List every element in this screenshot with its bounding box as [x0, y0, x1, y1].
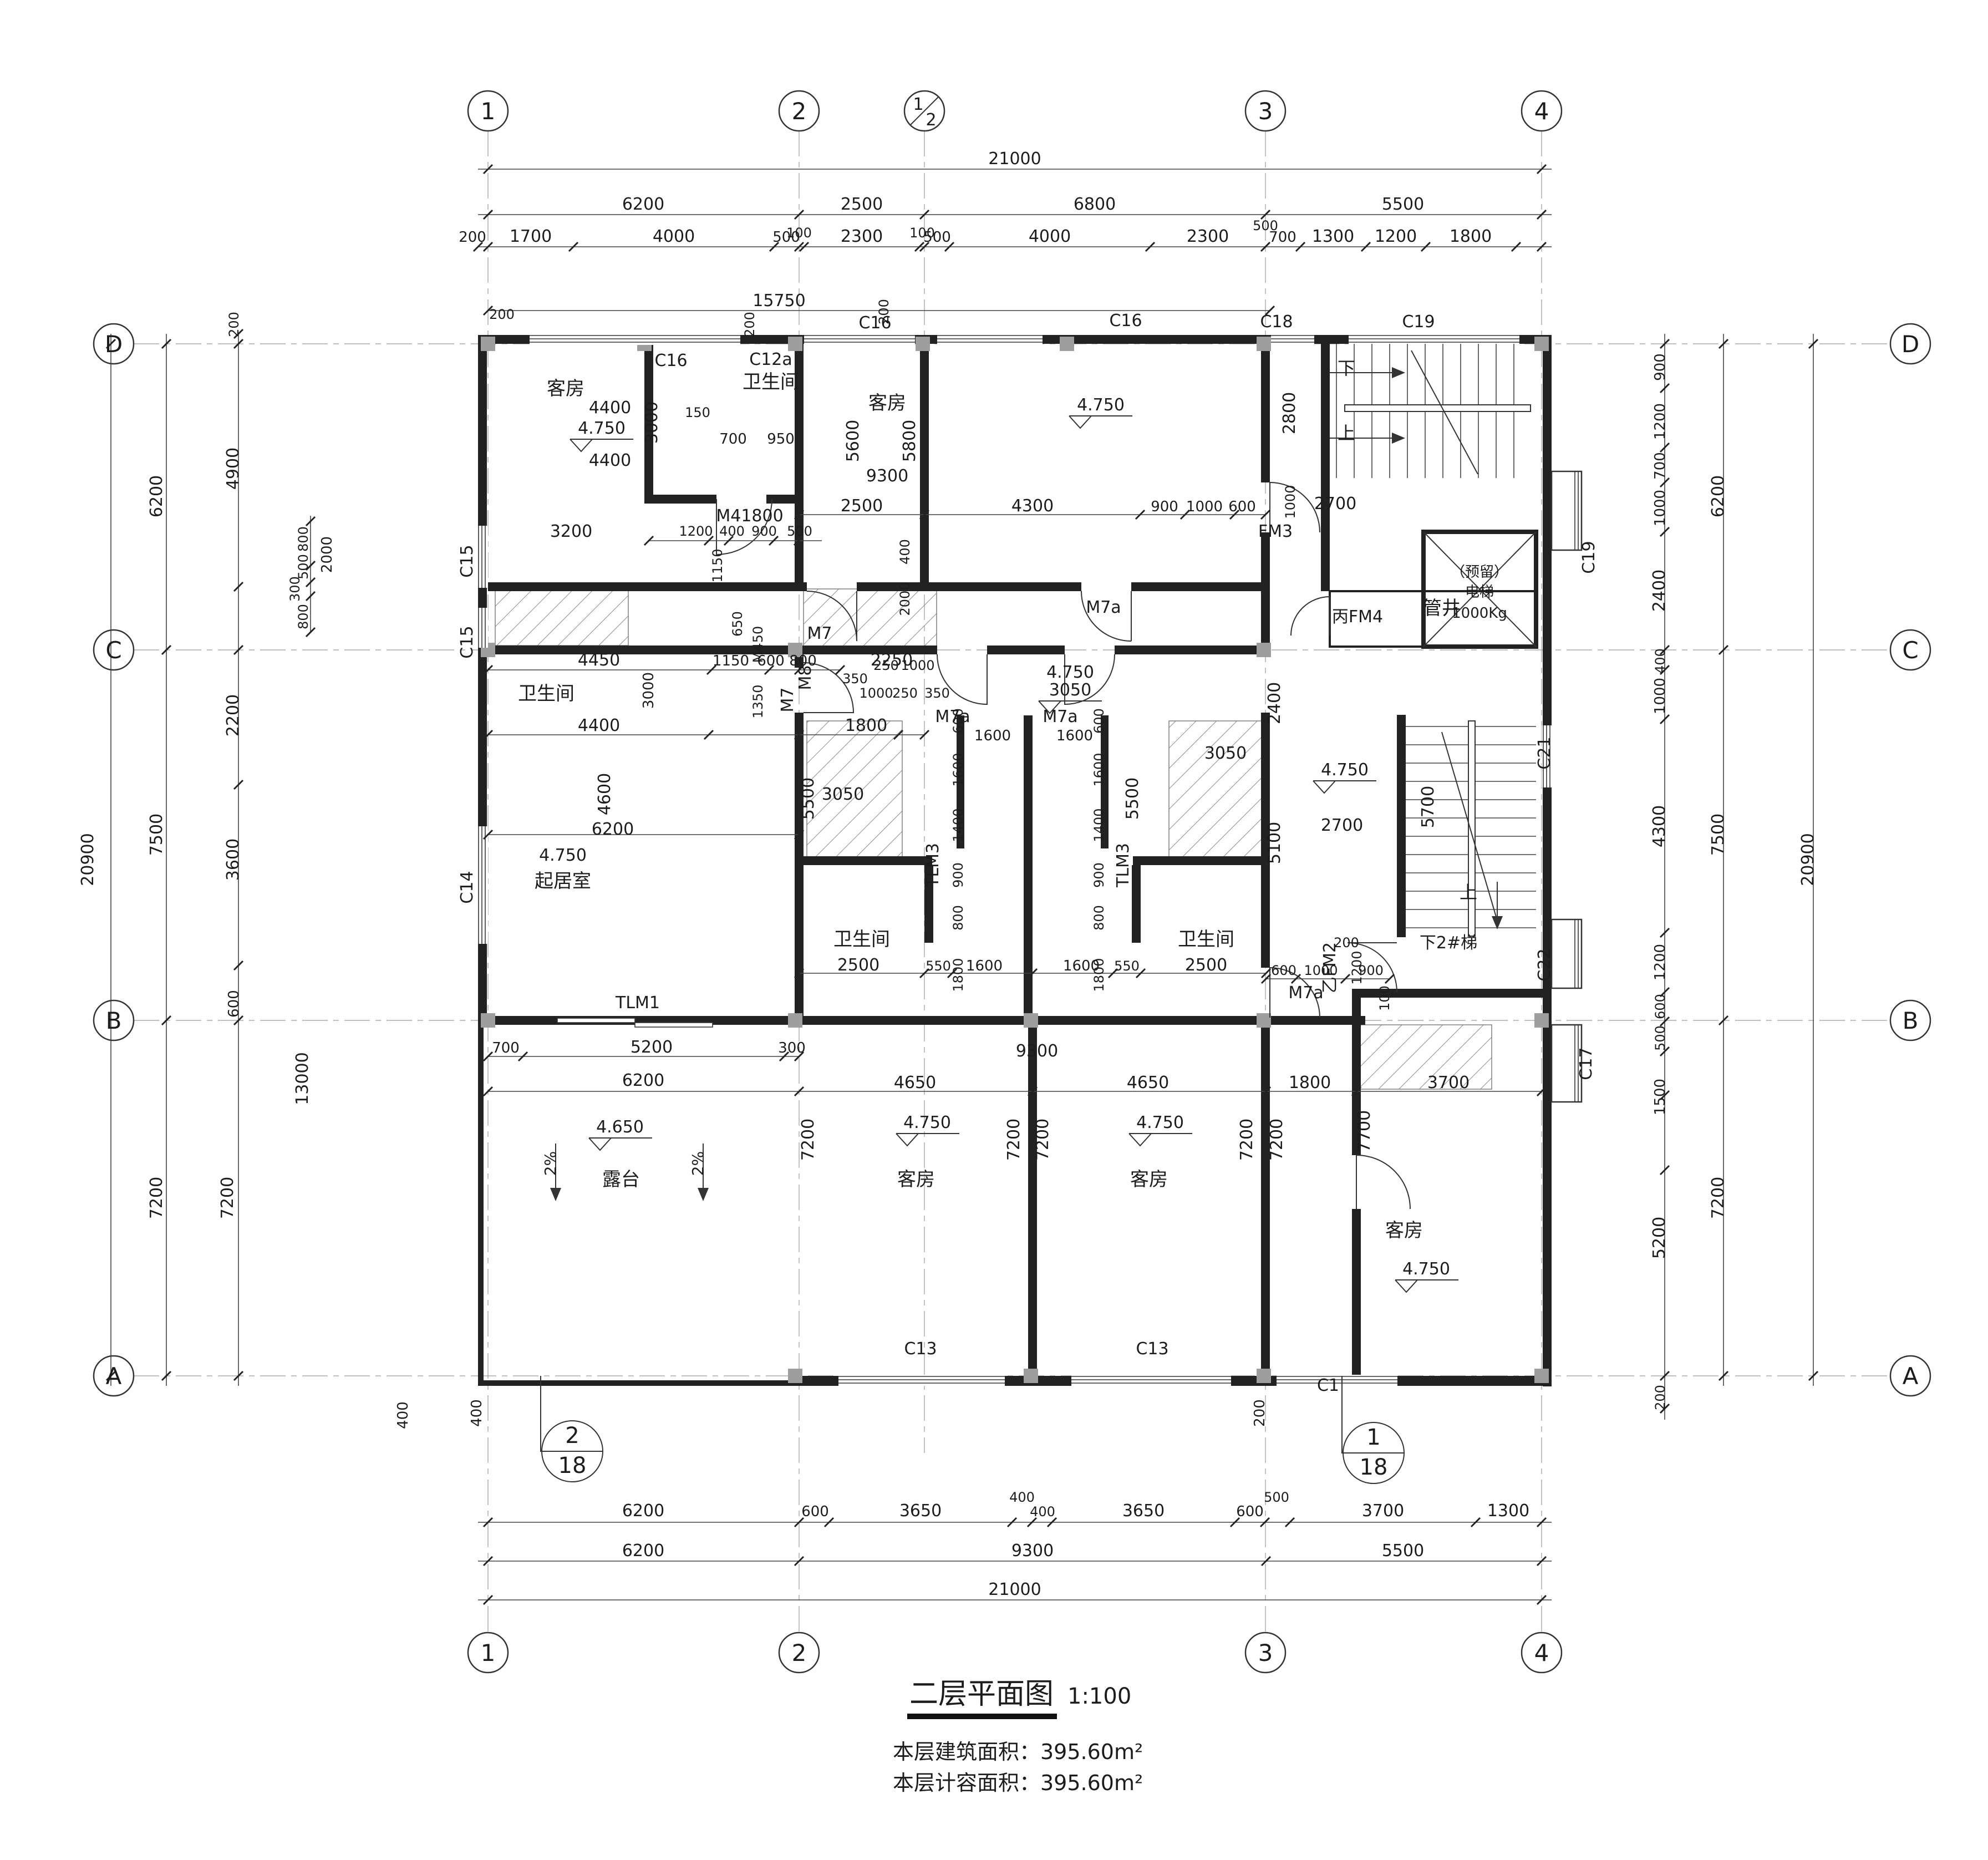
dim-label: 7200: [1267, 1119, 1287, 1161]
svg-text:D: D: [105, 331, 123, 358]
dim-label: 250: [892, 685, 918, 701]
dim-label: 700: [719, 431, 747, 448]
dim-label: 600: [801, 1503, 829, 1520]
grid-bubble-4: 4: [1522, 91, 1562, 131]
dim-label: 200: [489, 307, 515, 322]
dim-label: 200: [1653, 1385, 1668, 1410]
dim-label: 200: [1252, 1399, 1268, 1427]
dim-label: 2500: [837, 956, 879, 975]
room-label: 露台: [602, 1168, 640, 1191]
dim-label: 500: [787, 524, 812, 539]
dim-label: 上: [1338, 423, 1355, 444]
window-label: C16: [858, 313, 891, 333]
door-label: 乙FM2: [1320, 942, 1340, 993]
dim-label: 5600: [843, 420, 863, 462]
window-label: C1: [1317, 1376, 1339, 1395]
window-label: C12a: [749, 350, 792, 369]
section-label: 1: [1366, 1425, 1380, 1450]
elevation-label: 4.750: [1321, 760, 1369, 780]
svg-text:1: 1: [481, 98, 496, 125]
grid-bubble-1: 1: [468, 91, 508, 131]
dim-label: 6200: [592, 820, 634, 839]
window-label: C13: [904, 1339, 937, 1359]
door-label: M7a: [1086, 598, 1121, 617]
dim-label: 3050: [1049, 680, 1091, 700]
dim-label: 1200: [1349, 951, 1365, 984]
svg-text:1: 1: [481, 1639, 496, 1666]
dim-label: 900: [1652, 353, 1669, 381]
dim-label: 400: [1653, 648, 1668, 674]
section-label: 18: [1360, 1455, 1388, 1480]
dim-label: 1600: [1091, 753, 1107, 786]
window-label: C22: [1535, 948, 1554, 981]
dim-label: 9300: [866, 466, 908, 486]
dim-label: 5500: [1123, 777, 1142, 820]
svg-text:D: D: [1901, 331, 1919, 358]
dim-label: 600: [226, 990, 242, 1018]
dim-label: 2000: [897, 582, 913, 616]
dim-label: 500: [1264, 1490, 1289, 1505]
dim-label: 7700: [1355, 1110, 1374, 1152]
dim-label: 100: [1377, 985, 1392, 1011]
floor-capacity-area-text: 本层计容面积：395.60m²: [893, 1771, 1143, 1795]
elevation-marker: [570, 439, 633, 451]
grid-bubble-C: C: [1890, 630, 1930, 670]
window-label: C15: [457, 626, 477, 658]
dim-label: 4000: [1029, 227, 1071, 246]
dim-label: 400: [897, 539, 913, 565]
svg-text:B: B: [106, 1007, 122, 1034]
room-label: 卫生间: [518, 683, 574, 705]
window-label: C16: [1109, 311, 1142, 331]
svg-text:3: 3: [1258, 98, 1273, 125]
door-label: TLM3: [923, 843, 943, 888]
dim-label: 2700: [1314, 494, 1356, 514]
dim-label: 13000: [293, 1052, 312, 1105]
dim-label: 900: [751, 524, 777, 539]
dim-label: 150: [685, 405, 710, 420]
dim-label: 600: [1271, 963, 1296, 978]
dim-label: 1400: [950, 808, 966, 842]
grid-bubble-2: 2: [779, 91, 819, 131]
dim-label: 电梯: [1465, 584, 1494, 601]
dim-label: 9300: [1011, 1541, 1054, 1561]
dim-label: 21000: [988, 149, 1041, 169]
svg-text:3: 3: [1258, 1639, 1273, 1666]
elevation-label: 4.750: [1046, 663, 1094, 682]
svg-text:2: 2: [926, 110, 936, 130]
dim-label: 7500: [147, 814, 166, 856]
dim-label: 5100: [1265, 822, 1284, 864]
dim-label: 4300: [1650, 805, 1669, 847]
dim-label: 5500: [1382, 1541, 1424, 1561]
svg-text:2: 2: [792, 98, 807, 125]
section-label: 18: [558, 1453, 587, 1478]
dim-label: 2400: [1650, 570, 1669, 612]
dim-label: 15750: [753, 291, 805, 311]
dim-label: 700: [492, 1040, 520, 1056]
dim-label: 6200: [622, 1541, 664, 1561]
hatched-voids: [495, 588, 1492, 1089]
dim-label: 4650: [1127, 1073, 1169, 1092]
dim-label: 下: [1338, 358, 1355, 379]
dim-label: 1800: [950, 958, 966, 992]
dim-label: 6200: [147, 475, 166, 517]
dim-label: 20900: [1798, 833, 1818, 886]
grid-bubble-4: 4: [1522, 1633, 1562, 1673]
elevation-label: 4.750: [1402, 1259, 1450, 1279]
grid-bubble-1: 1: [468, 1633, 508, 1673]
dim-label: 800: [950, 905, 966, 931]
room-label: 客房: [547, 378, 584, 400]
dim-label: 500: [1653, 1025, 1668, 1051]
dim-label: 1700: [510, 227, 552, 246]
dim-label: 600: [757, 653, 785, 669]
svg-text:2: 2: [792, 1639, 807, 1666]
svg-text:B: B: [1903, 1007, 1919, 1034]
room-label: 客房: [897, 1168, 935, 1191]
window-label: C21: [1535, 736, 1554, 769]
door-label: M41800: [716, 506, 783, 526]
dim-label: 1000: [1652, 490, 1669, 526]
dim-label: 1000: [1186, 499, 1223, 515]
window-label: C13: [1136, 1339, 1168, 1359]
plan-markers: [541, 416, 1536, 1483]
door-label: FM3: [1258, 522, 1293, 541]
dim-label: 2000: [319, 536, 335, 573]
dim-label: 1200: [1652, 403, 1669, 440]
room-label: 起居室: [535, 870, 591, 892]
dim-label: 900: [950, 862, 966, 888]
svg-text:1: 1: [913, 95, 923, 114]
dim-label: 1600: [974, 728, 1011, 744]
dim-label: 6200: [1709, 475, 1728, 517]
dim-label: 5200: [631, 1038, 673, 1057]
dim-label: 4400: [578, 716, 620, 735]
dim-label: 400: [1009, 1490, 1035, 1505]
grid-bubble-3: 3: [1245, 91, 1285, 131]
dim-label: 1300: [1487, 1501, 1529, 1521]
door-label: M7a: [1043, 707, 1077, 726]
dim-label: 1350: [750, 684, 766, 718]
dim-label: 6200: [622, 1501, 664, 1521]
dim-label: 3700: [1427, 1073, 1470, 1092]
dim-label: 1600: [1056, 728, 1093, 744]
dim-label: 1000: [1283, 485, 1298, 519]
dim-label: 600: [950, 708, 966, 734]
dim-label: 1800: [845, 716, 887, 735]
drawing-title: 二层平面图: [909, 1678, 1054, 1711]
dim-label: 2300: [1187, 227, 1229, 246]
dim-label: 7200: [1237, 1119, 1257, 1161]
grid-bubble-2: 2: [779, 1633, 819, 1673]
dim-label: 1200: [1652, 944, 1669, 980]
grid-bubble-A: A: [94, 1356, 134, 1396]
dim-label: 2700: [1321, 816, 1363, 835]
svg-text:C: C: [105, 637, 121, 664]
grid-bubble-D: D: [1890, 324, 1930, 364]
room-label: 卫生间: [833, 928, 890, 951]
dim-label: 2800: [1280, 392, 1299, 434]
dim-label: 1200: [679, 524, 713, 539]
dim-label: 300: [287, 576, 303, 602]
dim-label: 500: [296, 554, 311, 580]
dim-label: 900: [1091, 862, 1107, 888]
dim-label: 5500: [1382, 195, 1424, 214]
stair-label: 下2#梯: [1420, 933, 1477, 953]
dim-label: 600: [1653, 994, 1668, 1019]
dim-label: 1000Kg: [1452, 605, 1507, 622]
elevation-label: 4.650: [596, 1117, 644, 1137]
door-label: M7: [778, 688, 797, 713]
dim-label: 600: [1091, 708, 1107, 734]
window-label: C19: [1579, 541, 1599, 573]
room-label: 卫生间: [1178, 928, 1234, 951]
dim-label: 650: [730, 611, 745, 637]
svg-text:C: C: [1902, 637, 1918, 664]
dim-label: 1800: [1289, 1073, 1331, 1092]
dim-label: 950: [767, 431, 795, 448]
dim-label: 7200: [1033, 1119, 1053, 1161]
dim-label: 3650: [899, 1501, 942, 1521]
dim-label: 3650: [1122, 1501, 1165, 1521]
window-label: C15: [457, 545, 477, 577]
window-label: C16: [654, 351, 687, 370]
elevation-label: 4.750: [578, 419, 626, 438]
dim-label: 6200: [622, 1071, 664, 1090]
dim-label: 4400: [589, 451, 631, 470]
dim-label: 上: [1460, 882, 1477, 903]
window-label: C19: [1402, 312, 1435, 332]
dim-label: 250: [873, 658, 899, 673]
dim-label: 7200: [218, 1177, 237, 1219]
door-label: M7: [807, 624, 832, 643]
dim-label: 550: [1114, 958, 1140, 974]
floor-area-text: 本层建筑面积：395.60m²: [893, 1740, 1143, 1764]
dim-label: 5800: [900, 420, 919, 462]
dim-label: 800: [296, 604, 311, 629]
svg-text:A: A: [1903, 1363, 1919, 1390]
dim-label: 1800: [1450, 227, 1492, 246]
dim-label: 1000: [901, 658, 934, 673]
dim-label: 400: [469, 1399, 485, 1427]
dim-label: 4450: [578, 651, 620, 670]
room-label: 卫生间: [743, 371, 799, 393]
dim-label: 700: [1269, 229, 1296, 246]
dim-label: 3600: [223, 838, 243, 881]
door-label: TLM1: [615, 993, 660, 1013]
dim-label: 3050: [822, 785, 864, 804]
dim-label: 7200: [1709, 1177, 1728, 1219]
dim-label: 4400: [589, 398, 631, 418]
grid-bubbles: 1212341234DCBADCBA: [94, 91, 1930, 1673]
dim-label: 5200: [1650, 1217, 1669, 1259]
dim-label: 4300: [1011, 496, 1054, 516]
dim-label: 3050: [1204, 744, 1247, 763]
dim-label: 2500: [841, 195, 883, 214]
dim-label: 550: [926, 958, 951, 974]
dim-label: 400: [1030, 1504, 1055, 1519]
window-label: C14: [457, 871, 477, 903]
dim-label: 1300: [1312, 227, 1354, 246]
dim-label: 400: [719, 524, 745, 539]
dim-label: 1600: [966, 958, 1003, 974]
dim-label: 2%: [541, 1151, 560, 1176]
dim-label: 4650: [894, 1073, 936, 1092]
dim-label: （预留）: [1451, 564, 1508, 581]
grid-bubble-A: A: [1890, 1356, 1930, 1396]
floor-plan-drawing: 1212341234DCBADCBA 210006200250068005500…: [0, 0, 1988, 1860]
door-label: 丙FM4: [1332, 607, 1383, 627]
dim-label: 4900: [223, 448, 243, 490]
dim-label: 5500: [799, 777, 818, 820]
dim-label: 800: [1091, 905, 1107, 931]
dim-label: 1150: [713, 653, 749, 669]
window-label: C17: [1577, 1047, 1596, 1080]
elevation-label: 4.750: [1077, 395, 1125, 415]
dim-label: 200: [742, 312, 757, 337]
dim-label: 3700: [1362, 1501, 1404, 1521]
dim-label: 3000: [640, 672, 657, 709]
grid-bubble-B: B: [94, 1000, 134, 1040]
dim-label: 500: [923, 229, 951, 246]
grid-bubble-D: D: [94, 324, 134, 364]
dim-label: 6200: [622, 195, 664, 214]
window-label: C18: [1260, 312, 1293, 332]
dim-label: 2%: [689, 1151, 707, 1176]
dim-label: 600: [1236, 1503, 1264, 1520]
dim-label: 3200: [550, 522, 592, 541]
dim-label: 3000: [642, 402, 662, 444]
grid-bubble-C: C: [94, 630, 134, 670]
room-label: 客房: [1385, 1219, 1423, 1242]
dim-label: 1400: [1091, 808, 1107, 842]
section-label: 2: [565, 1423, 579, 1449]
title-underline: [907, 1714, 1057, 1719]
dim-label: 350: [924, 685, 950, 701]
dim-label: 9300: [1016, 1041, 1058, 1061]
dim-label: 7200: [147, 1177, 166, 1219]
drawing-scale: 1:100: [1067, 1684, 1131, 1709]
dim-label: 2300: [841, 227, 883, 246]
dim-label: 6800: [1074, 195, 1116, 214]
dim-label: 21000: [988, 1580, 1041, 1599]
dim-label: 5700: [1418, 786, 1438, 828]
floor-plan-sheet: 1212341234DCBADCBA 210006200250068005500…: [0, 0, 1988, 1860]
svg-text:4: 4: [1534, 1639, 1549, 1666]
door-label: M7a: [1288, 983, 1323, 1003]
dim-label: 4600: [595, 773, 614, 815]
dim-label: 600: [1228, 499, 1256, 515]
dim-label: 1600: [950, 753, 966, 786]
room-label: 客房: [1130, 1168, 1168, 1191]
dim-label: 1600: [1063, 958, 1100, 974]
dim-label: 400: [395, 1401, 411, 1429]
dim-label: 200: [459, 229, 486, 246]
dim-label: 800: [296, 526, 311, 552]
elevation-label: 4.750: [903, 1113, 951, 1132]
dim-label: 7500: [1709, 814, 1728, 856]
dim-label: 2400: [1265, 682, 1284, 724]
elevation-label: 4.750: [1136, 1113, 1184, 1132]
dim-label: 1200: [1375, 227, 1417, 246]
dim-label: 300: [778, 1040, 806, 1056]
door-label: TLM3: [1114, 843, 1133, 888]
dim-label: 1000: [1652, 678, 1669, 714]
dim-label: 1500: [1652, 1079, 1669, 1115]
dim-label: 7200: [1004, 1119, 1024, 1161]
room-label: 客房: [868, 392, 906, 414]
svg-text:4: 4: [1534, 98, 1549, 125]
dim-label: 1150: [710, 548, 725, 582]
dim-label: 350: [842, 671, 868, 687]
dim-label: 700: [1652, 452, 1669, 480]
grid-bubble-12: 12: [904, 91, 944, 131]
dim-label: 2500: [841, 496, 883, 516]
grid-bubble-B: B: [1890, 1000, 1930, 1040]
dim-label: 20900: [78, 833, 98, 886]
staircases: [1330, 344, 1536, 936]
door-label: M8: [796, 665, 815, 690]
grid-bubble-3: 3: [1245, 1633, 1285, 1673]
dim-label: 2500: [1185, 956, 1227, 975]
svg-text:A: A: [106, 1363, 122, 1390]
dim-label: 2200: [223, 694, 243, 736]
elevation-label: 4.750: [539, 846, 587, 865]
dim-label: 200: [226, 312, 242, 337]
dim-label: 7200: [799, 1119, 818, 1161]
dim-label: 900: [1151, 499, 1178, 515]
dim-label: 500: [772, 229, 800, 246]
dim-label: 4000: [653, 227, 695, 246]
dim-label: 1000: [859, 685, 893, 701]
